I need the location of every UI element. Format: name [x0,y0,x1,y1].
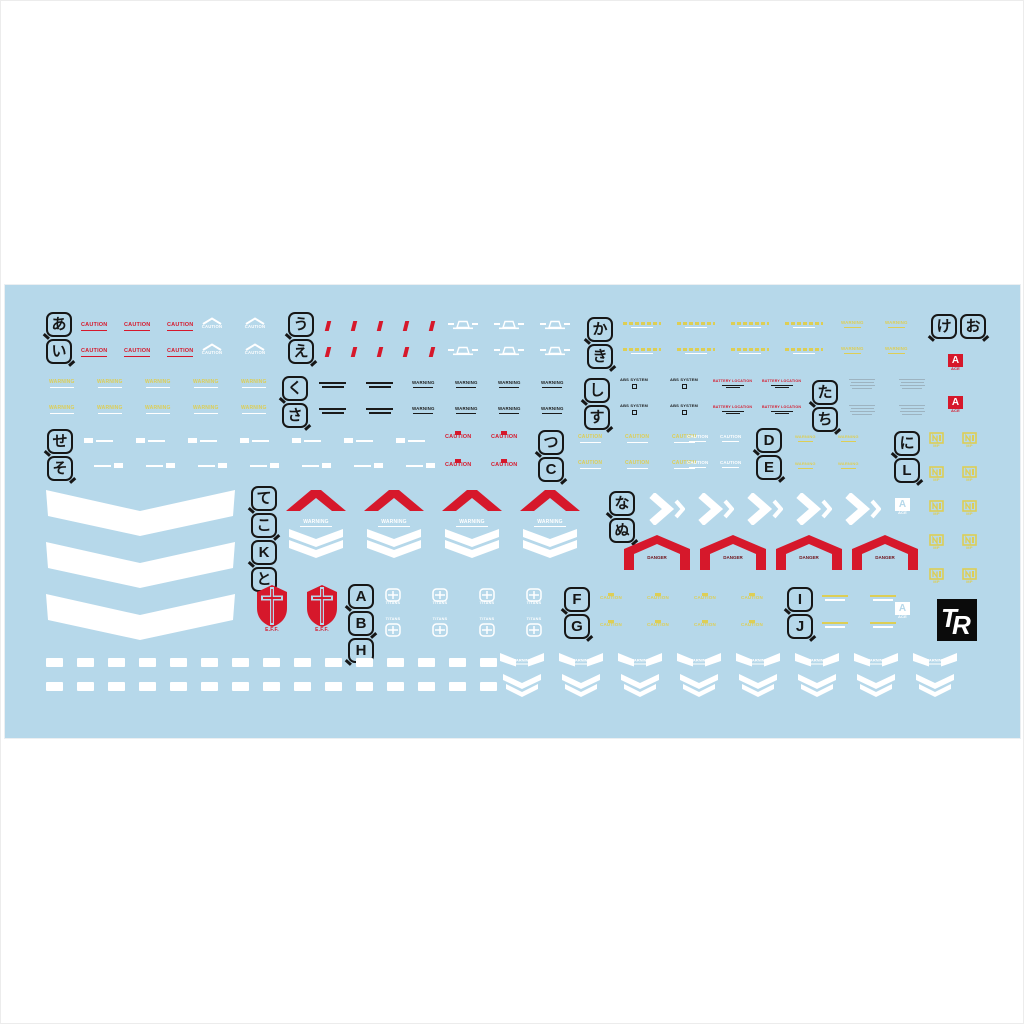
kana-callout-box: か [587,317,613,342]
kana-callout-box: た [812,380,838,405]
caution-yellow-block-decal: CAUTION [600,620,622,628]
yellow-short-decal: WARNING [885,347,908,354]
decal-layer: あいうえかきけおくさしすたちせそつCDEにLてこKとなぬABHFGIJCAUTI… [1,1,1024,1024]
callout-char: え [288,339,314,364]
yellow-long-decal [677,322,715,328]
kana-callout-box: G [564,614,590,639]
yellow-warning-decal: WARNING [193,406,219,414]
yellow-white-2l-decal [822,622,848,628]
abs-system-decal: ABS SYSTEM [670,378,698,389]
caution-yellow-block-decal: CAUTION [694,620,716,628]
caution-yellow-decal: CAUTION [625,461,649,469]
yellow-warning-decal: WARNING [241,406,267,414]
caution-red-decal: CAUTION [167,323,193,331]
callout-char: う [288,312,314,337]
white-dash-decal [480,682,497,691]
abs-system-decal: ABS SYSTEM [620,378,648,389]
titans-bottom-decal: TITANS [432,618,448,637]
red-chevron-decal [363,488,425,511]
white-dash-decal [356,682,373,691]
white-dash-decal [170,658,187,667]
kana-callout-box: な [609,491,635,516]
red-tick-decal [404,347,408,357]
caution-red-decal: CAUTION [167,349,193,357]
yellow-long-decal [731,322,769,328]
un-mp-decal: MP [962,568,977,584]
eff-shield-decal: E.F.F. [255,584,289,633]
callout-char: し [584,378,610,403]
caution-red-decal: CAUTION [81,323,107,331]
yellow-warning-decal: WARNING [97,380,123,388]
un-mp-decal: MP [962,432,977,448]
red-tick-decal [378,321,382,331]
kana-callout-box: K [251,540,277,565]
warning-shield-decal: WARNING [521,520,579,559]
product-image: あいうえかきけおくさしすたちせそつCDEにLてこKとなぬABHFGIJCAUTI… [0,0,1024,1024]
warning-wing-decal: WARNING [794,653,840,700]
white-dash-decal [325,658,342,667]
yellow-short-decal: WARNING [841,347,864,354]
yellow-warning-decal: WARNING [241,380,267,388]
yellow-white-2l-decal [870,595,896,601]
callout-char: G [564,614,590,639]
ace-badge-white-decal: AACE [895,602,910,619]
white-dash-decal [46,682,63,691]
white-dash-decal [77,682,94,691]
black-warning-decal: WARNING [455,407,478,414]
kana-callout-box: に [894,431,920,456]
caution-yellow-decal: CAUTION [625,435,649,443]
svg-text:DANGER: DANGER [723,555,743,560]
danger-arrow-decal: DANGER [850,534,920,570]
white-grille-decal [494,345,524,356]
titans-top-decal: TITANS [385,588,401,606]
callout-char: D [756,428,782,453]
un-mp-decal: MP [962,500,977,516]
kana-callout-box: お [960,314,986,339]
warning-yellow-small-decal: WARNING [795,435,816,442]
yellow-warning-decal: WARNING [193,380,219,388]
yellow-long-decal [731,348,769,354]
callout-char: せ [47,429,73,454]
svg-text:WARNING: WARNING [630,658,649,663]
white-dash-decal [325,682,342,691]
white-grille-decal [494,319,524,330]
callout-char: そ [47,456,73,481]
red-chevron-decal [519,488,581,511]
danger-arrow-decal: DANGER [698,534,768,570]
big-chevron-decal [43,542,238,588]
black-warning-decal: WARNING [498,407,521,414]
caution-yellow-block-decal: CAUTION [647,593,669,601]
yellow-long-decal [677,348,715,354]
battery-decal: BATTERY LOCATION [713,380,752,388]
white-dash-decal [418,658,435,667]
kana-callout-box: て [251,486,277,511]
callout-char: L [894,458,920,483]
white-arrow-r-decal [794,493,832,525]
battery-decal: BATTERY LOCATION [713,406,752,414]
warning-wing-decal: WARNING [558,653,604,700]
caution-white-decal: CAUTION [720,435,741,442]
un-mp-decal: MP [929,466,944,482]
white-dash-decal [263,682,280,691]
tiny-2line-decal [366,408,393,414]
callout-char: け [931,314,957,339]
kana-callout-box: け [931,314,957,339]
warning-shield-decal: WARNING [287,520,345,559]
caution-red-block-decal: CAUTION [445,431,471,440]
yellow-white-2l-decal [870,622,896,628]
white-dash-decal [46,658,63,667]
white-text-block-decal [198,463,227,468]
warning-wing-decal: WARNING [499,653,545,700]
callout-char: K [251,540,277,565]
warning-wing-decal: WARNING [853,653,899,700]
svg-text:WARNING: WARNING [748,658,767,663]
warning-yellow-small-decal: WARNING [838,462,859,469]
callout-char: つ [538,430,564,455]
titans-top-decal: TITANS [432,588,448,606]
white-dash-decal [108,682,125,691]
ace-badge-white-decal: AACE [895,498,910,515]
ace-badge-red-decal: AACE [948,396,963,413]
caution-yellow-block-decal: CAUTION [741,620,763,628]
svg-text:WARNING: WARNING [571,658,590,663]
caution-white-chev-decal: CAUTION [201,343,223,355]
white-dash-decal [387,658,404,667]
white-arrow-r-decal [647,493,685,525]
kana-callout-box: L [894,458,920,483]
callout-char: C [538,457,564,482]
warning-wing-decal: WARNING [735,653,781,700]
kana-callout-box: J [787,614,813,639]
white-dash-decal [294,658,311,667]
callout-char: か [587,317,613,342]
callout-char: J [787,614,813,639]
gray-block-decal [899,379,925,389]
un-mp-decal: MP [962,534,977,550]
white-dash-decal [170,682,187,691]
caution-red-decal: CAUTION [124,323,150,331]
kana-callout-box: い [46,339,72,364]
red-tick-decal [378,347,382,357]
kana-callout-box: D [756,428,782,453]
caution-white-chev-decal: CAUTION [244,317,266,329]
white-block-text-decal [292,438,321,443]
red-tick-decal [352,347,356,357]
warning-shield-decal: WARNING [443,520,501,559]
white-grille-decal [448,319,478,330]
kana-callout-box: こ [251,513,277,538]
kana-callout-box: F [564,587,590,612]
svg-text:DANGER: DANGER [799,555,819,560]
yellow-warning-decal: WARNING [49,406,75,414]
kana-callout-box: し [584,378,610,403]
svg-text:WARNING: WARNING [925,658,944,663]
white-block-text-decal [396,438,425,443]
svg-text:WARNING: WARNING [512,658,531,663]
callout-char: た [812,380,838,405]
callout-char: す [584,405,610,430]
callout-char: さ [282,403,308,428]
tiny-2line-decal [319,382,346,388]
titans-bottom-decal: TITANS [385,618,401,637]
white-dash-decal [263,658,280,667]
caution-white-decal: CAUTION [687,461,708,468]
yellow-short-decal: WARNING [885,321,908,328]
white-dash-decal [418,682,435,691]
kana-callout-box: C [538,457,564,482]
callout-char: に [894,431,920,456]
white-block-text-decal [136,438,165,443]
warning-yellow-small-decal: WARNING [838,435,859,442]
kana-callout-box: う [288,312,314,337]
white-dash-decal [201,682,218,691]
yellow-warning-decal: WARNING [97,406,123,414]
callout-char: ち [812,407,838,432]
white-dash-decal [139,658,156,667]
abs-system-decal: ABS SYSTEM [620,404,648,415]
eff-shield-decal: E.F.F. [305,584,339,633]
svg-text:WARNING: WARNING [807,658,826,663]
white-text-block-decal [250,463,279,468]
kana-callout-box: I [787,587,813,612]
callout-char: て [251,486,277,511]
black-warning-decal: WARNING [541,407,564,414]
un-mp-decal: MP [929,534,944,550]
gray-block-decal [849,379,875,389]
titans-top-decal: TITANS [479,588,495,606]
yellow-warning-decal: WARNING [49,380,75,388]
danger-arrow-decal: DANGER [622,534,692,570]
yellow-long-decal [623,348,661,354]
callout-char: A [348,584,374,609]
black-warning-decal: WARNING [541,381,564,388]
caution-white-decal: CAUTION [720,461,741,468]
caution-red-block-decal: CAUTION [491,431,517,440]
caution-yellow-block-decal: CAUTION [694,593,716,601]
callout-char: E [756,455,782,480]
warning-wing-decal: WARNING [912,653,958,700]
svg-text:DANGER: DANGER [875,555,895,560]
battery-decal: BATTERY LOCATION [762,380,801,388]
white-arrow-r-decal [696,493,734,525]
white-dash-decal [139,682,156,691]
warning-wing-decal: WARNING [676,653,722,700]
kana-callout-box: さ [282,403,308,428]
red-tick-decal [404,321,408,331]
white-arrow-r-decal [745,493,783,525]
white-grille-decal [540,345,570,356]
kana-callout-box: そ [47,456,73,481]
white-dash-decal [294,682,311,691]
white-block-text-decal [188,438,217,443]
caution-red-decal: CAUTION [81,349,107,357]
black-warning-decal: WARNING [455,381,478,388]
yellow-long-decal [785,322,823,328]
white-dash-decal [449,682,466,691]
white-dash-decal [201,658,218,667]
white-grille-decal [448,345,478,356]
caution-red-block-decal: CAUTION [445,459,471,468]
titans-top-decal: TITANS [526,588,542,606]
black-warning-decal: WARNING [412,381,435,388]
callout-char: き [587,344,613,369]
white-dash-decal [232,682,249,691]
gray-block-decal [899,405,925,415]
caution-yellow-block-decal: CAUTION [741,593,763,601]
white-text-block-decal [146,463,175,468]
caution-yellow-decal: CAUTION [578,435,602,443]
yellow-white-2l-decal [822,595,848,601]
callout-char: な [609,491,635,516]
danger-arrow-decal: DANGER [774,534,844,570]
caution-white-decal: CAUTION [687,435,708,442]
red-tick-decal [326,321,330,331]
white-dash-decal [108,658,125,667]
yellow-short-decal: WARNING [841,321,864,328]
red-chevron-decal [441,488,503,511]
big-chevron-decal [43,490,238,536]
callout-char: い [46,339,72,364]
un-mp-decal: MP [929,568,944,584]
un-mp-decal: MP [929,432,944,448]
gray-block-decal [849,405,875,415]
caution-white-chev-decal: CAUTION [244,343,266,355]
white-text-block-decal [354,463,383,468]
white-block-text-decal [240,438,269,443]
white-dash-decal [480,658,497,667]
kana-callout-box: ち [812,407,838,432]
white-dash-decal [449,658,466,667]
callout-char: こ [251,513,277,538]
yellow-long-decal [623,322,661,328]
kana-callout-box: つ [538,430,564,455]
red-tick-decal [352,321,356,331]
white-text-block-decal [406,463,435,468]
warning-wing-decal: WARNING [617,653,663,700]
svg-text:WARNING: WARNING [689,658,708,663]
kana-callout-box: B [348,611,374,636]
white-block-text-decal [344,438,373,443]
yellow-warning-decal: WARNING [145,380,171,388]
caution-white-chev-decal: CAUTION [201,317,223,329]
black-warning-decal: WARNING [498,381,521,388]
white-arrow-r-decal [843,493,881,525]
white-dash-decal [387,682,404,691]
white-text-block-decal [94,463,123,468]
white-dash-decal [77,658,94,667]
red-chevron-decal [285,488,347,511]
kana-callout-box: あ [46,312,72,337]
battery-decal: BATTERY LOCATION [762,406,801,414]
kana-callout-box: せ [47,429,73,454]
svg-text:R: R [952,610,971,640]
kana-callout-box: A [348,584,374,609]
tiny-2line-decal [366,382,393,388]
caution-yellow-block-decal: CAUTION [600,593,622,601]
white-dash-decal [232,658,249,667]
red-tick-decal [326,347,330,357]
red-tick-decal [430,321,434,331]
callout-char: I [787,587,813,612]
yellow-warning-decal: WARNING [145,406,171,414]
un-mp-decal: MP [929,500,944,516]
caution-red-decal: CAUTION [124,349,150,357]
kana-callout-box: え [288,339,314,364]
white-dash-decal [356,658,373,667]
callout-char: B [348,611,374,636]
tiny-2line-decal [319,408,346,414]
caution-red-block-decal: CAUTION [491,459,517,468]
warning-shield-decal: WARNING [365,520,423,559]
white-block-text-decal [84,438,113,443]
kana-callout-box: く [282,376,308,401]
svg-text:WARNING: WARNING [866,658,885,663]
callout-char: あ [46,312,72,337]
svg-text:DANGER: DANGER [647,555,667,560]
abs-system-decal: ABS SYSTEM [670,404,698,415]
callout-char: F [564,587,590,612]
yellow-long-decal [785,348,823,354]
titans-bottom-decal: TITANS [479,618,495,637]
callout-char: お [960,314,986,339]
warning-yellow-small-decal: WARNING [795,462,816,469]
kana-callout-box: す [584,405,610,430]
callout-char: く [282,376,308,401]
un-mp-decal: MP [962,466,977,482]
big-chevron-decal [43,594,238,640]
caution-yellow-decal: CAUTION [578,461,602,469]
white-text-block-decal [302,463,331,468]
kana-callout-box: E [756,455,782,480]
white-grille-decal [540,319,570,330]
tr-logo-decal: TR [937,599,977,641]
titans-bottom-decal: TITANS [526,618,542,637]
kana-callout-box: き [587,344,613,369]
black-warning-decal: WARNING [412,407,435,414]
red-tick-decal [430,347,434,357]
caution-yellow-block-decal: CAUTION [647,620,669,628]
ace-badge-red-decal: AACE [948,354,963,371]
